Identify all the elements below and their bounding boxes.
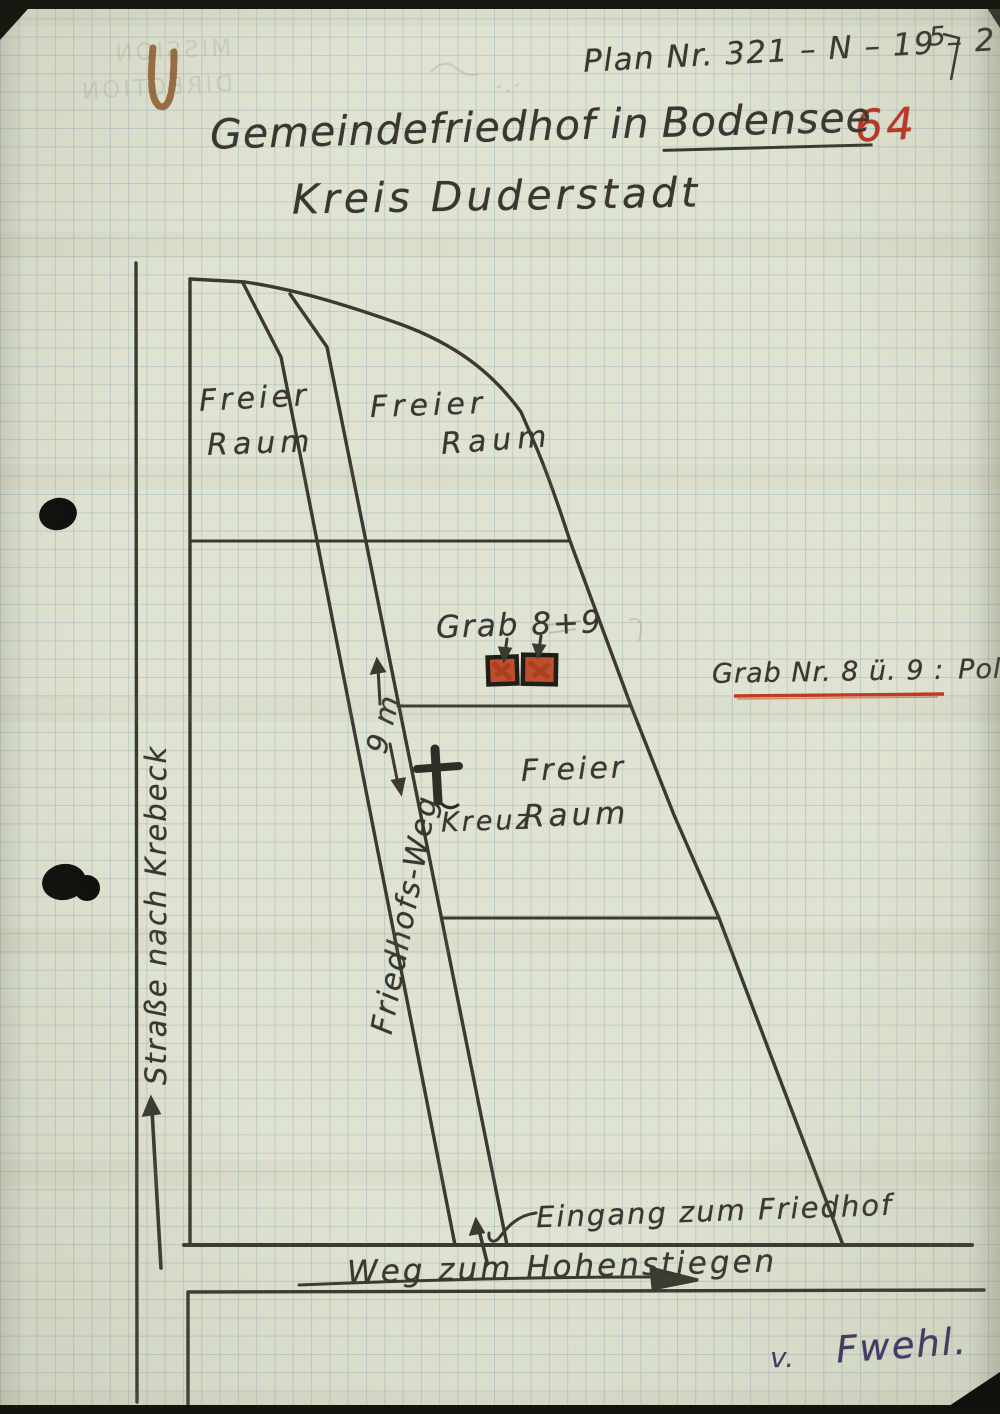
- grave-note: Grab Nr. 8 ü. 9 :Polen: [712, 653, 1000, 690]
- punch-holes: [36, 494, 100, 904]
- area-top-left-label-2: Raum: [206, 424, 315, 463]
- entrance-leader-line: [489, 1213, 536, 1241]
- area-middle-label: Freier: [520, 750, 626, 789]
- area-middle-label-2: Raum: [522, 795, 630, 835]
- graves-label: Grab 8+9: [435, 604, 603, 646]
- plan-corner-mark: 5: [928, 21, 948, 52]
- road-left-line: [136, 263, 137, 1402]
- grave-note-label: Grab Nr. 8 ü. 9 :: [712, 655, 945, 690]
- ink-arrows: [144, 636, 698, 1289]
- scanned-document-page: MISSION DIRECTION Plan Nr. 321 – N – 19 …: [0, 0, 1000, 1414]
- page-subtitle: Kreis Duderstadt: [292, 168, 702, 223]
- punch-hole-top: [36, 494, 81, 534]
- signature-initial: v.: [770, 1341, 795, 1374]
- cross-label: Kreuz: [440, 804, 533, 838]
- area-top-left-label: Freier: [198, 378, 311, 419]
- road-left-label: Straße nach Krebeck: [139, 755, 173, 1085]
- road-direction-arrow: [152, 1110, 161, 1268]
- grave-note-value: Polen: [958, 653, 1000, 685]
- grave-squares: [488, 655, 557, 685]
- title-place: Bodensee: [661, 93, 873, 151]
- signature-name: Fwehl.: [835, 1319, 969, 1371]
- bleedthrough-stamp: MISSION DIRECTION: [76, 30, 234, 110]
- area-top-right-label: Freier: [369, 386, 487, 425]
- note-underline: [734, 694, 944, 699]
